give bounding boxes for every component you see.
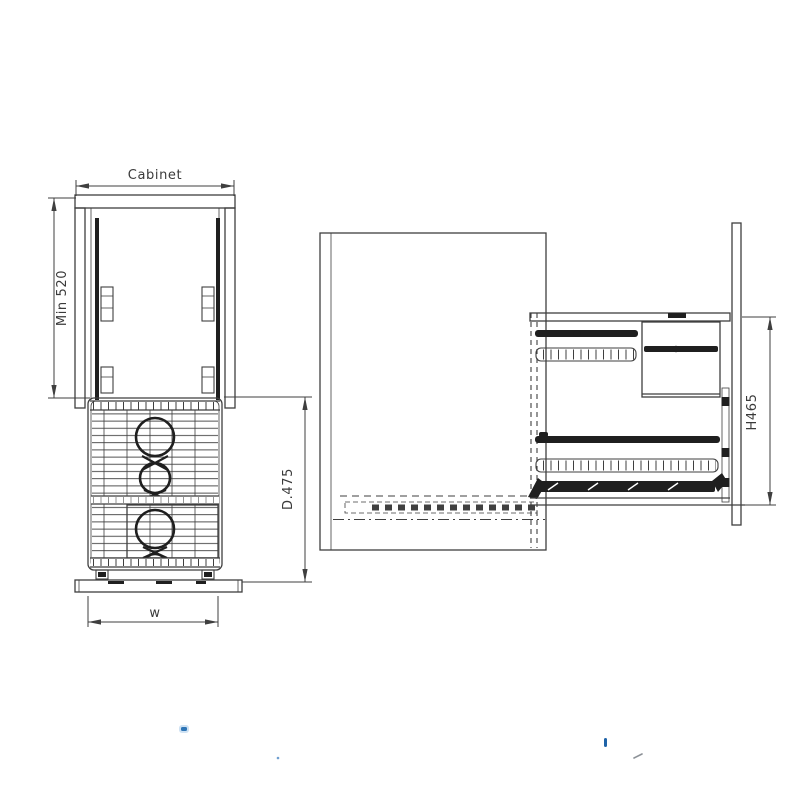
blue-artifact-2 — [277, 757, 280, 760]
door-bracket-strip — [712, 388, 730, 502]
depth-label: D.475 — [281, 468, 296, 510]
dimension-min-520: Min 520 — [48, 198, 90, 398]
slide-rail-dashed — [333, 313, 545, 548]
gray-artifact — [634, 754, 642, 758]
basket-wire-mesh — [92, 410, 218, 578]
dimension-w: w — [88, 596, 218, 627]
cabinet-side-outline — [320, 233, 546, 550]
width-label: w — [149, 606, 160, 621]
basket-bottom-rim — [90, 558, 220, 567]
blue-artifact-1 — [181, 727, 187, 731]
dimension-cabinet-width: Cabinet — [76, 168, 234, 196]
upper-right-basket — [642, 322, 720, 397]
pullout-basket-side — [528, 223, 745, 525]
bottom-slide-rail — [528, 478, 715, 499]
slide-rails-front — [95, 218, 220, 400]
dimension-d475: D.475 — [224, 397, 312, 582]
scan-artifacts — [179, 725, 642, 759]
cabinet-pullout-drawing: Cabinet Min 520 D.475 w — [0, 0, 800, 800]
front-view: Cabinet Min 520 D.475 w — [48, 168, 312, 627]
basket-top-rim — [90, 401, 220, 410]
height-label: H465 — [745, 394, 760, 431]
door-panel — [732, 223, 741, 525]
min-height-label: Min 520 — [55, 270, 70, 326]
blue-artifact-3 — [604, 738, 607, 747]
technical-drawing-page: Cabinet Min 520 D.475 w — [0, 0, 800, 800]
basket-feet — [96, 570, 214, 579]
upper-basket-rim — [536, 348, 636, 361]
basket-divider — [91, 496, 219, 504]
side-view: H465 — [320, 223, 776, 550]
dimension-h465: H465 — [742, 317, 776, 505]
front-panel-bar — [75, 580, 242, 592]
lower-basket-rim — [536, 459, 718, 472]
cabinet-width-label: Cabinet — [128, 168, 182, 183]
pullout-basket-front — [88, 398, 222, 579]
